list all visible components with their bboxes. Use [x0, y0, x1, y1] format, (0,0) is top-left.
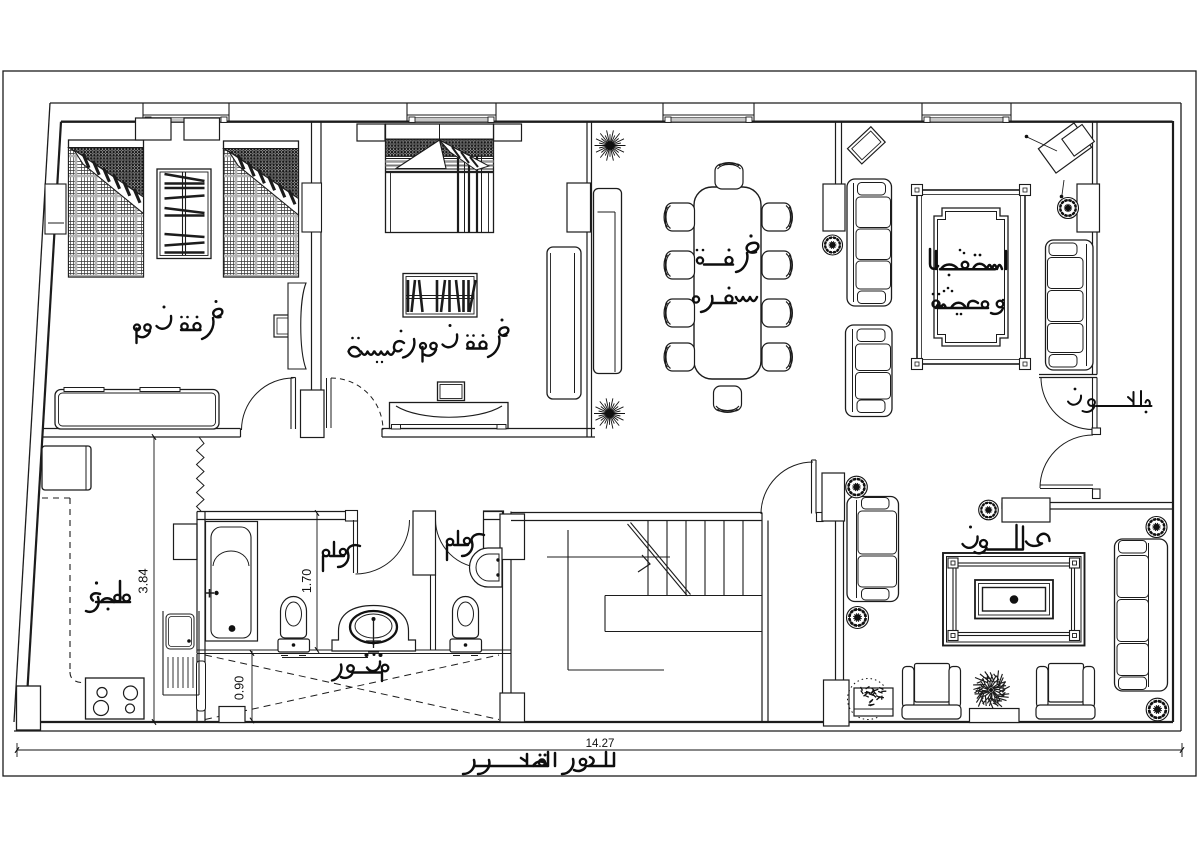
svg-text:14.27: 14.27: [586, 738, 615, 750]
svg-text:3.84: 3.84: [136, 568, 151, 593]
svg-text:1.70: 1.70: [300, 569, 314, 593]
svg-text:0.90: 0.90: [233, 676, 247, 700]
